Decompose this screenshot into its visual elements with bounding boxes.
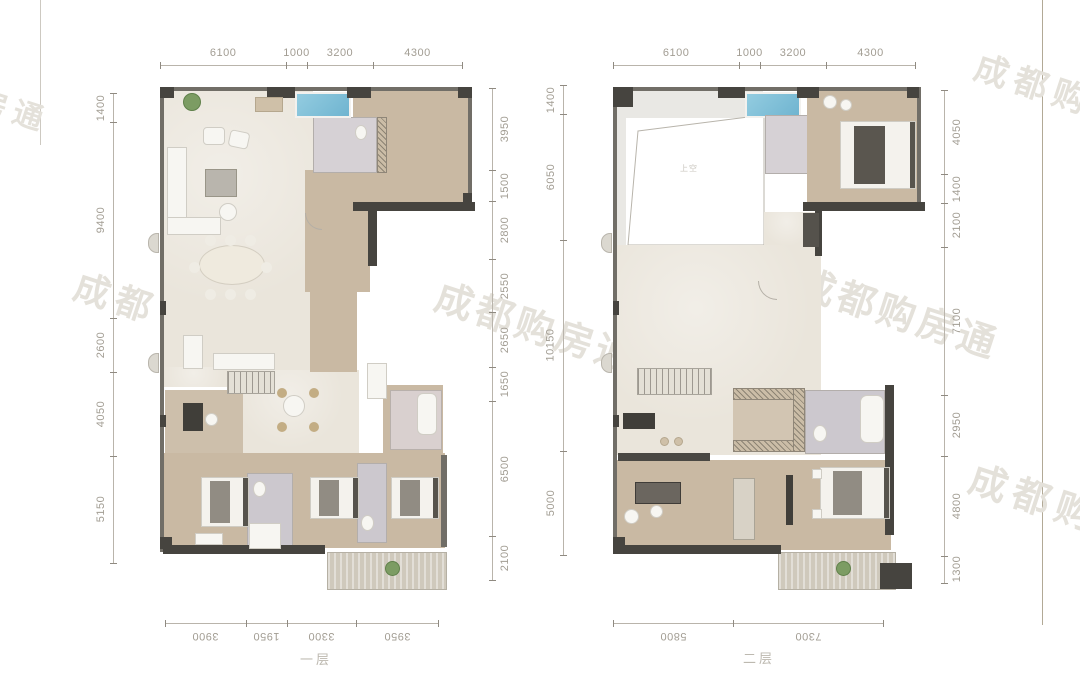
dim-tick [307, 62, 308, 69]
stool [840, 99, 852, 111]
dim-segment: 1400 [92, 93, 110, 122]
dim-chain-first-top: 6100100032004300 [160, 44, 462, 71]
column-block [718, 87, 745, 98]
dim-segment: 1000 [286, 44, 307, 62]
dim-value: 1650 [499, 371, 511, 397]
floorplan-canvas: 房通 成都购 成都 成都购房通 成都购房通 成都购房 [0, 0, 1080, 680]
dining-chairs [205, 235, 216, 246]
dim-value: 4050 [951, 119, 963, 145]
dim-chain-second-bottom: 58007300 [613, 618, 883, 645]
tv-panel [786, 475, 793, 525]
dim-value: 6100 [663, 47, 689, 59]
dim-value: 5000 [545, 490, 557, 516]
nightstand [812, 469, 822, 479]
dim-line [492, 88, 493, 580]
column-block [907, 87, 919, 98]
wall-segment [613, 87, 919, 91]
dim-tick [941, 247, 948, 248]
dim-tick [560, 555, 567, 556]
column-block [613, 537, 625, 547]
wall-segment [803, 202, 925, 211]
single-bed [367, 363, 387, 399]
dim-segment: 2800 [496, 201, 514, 259]
column-block [160, 537, 172, 549]
watermark: 成都购 [969, 40, 1080, 125]
kitchen-island [213, 353, 275, 370]
column-block [160, 415, 166, 427]
column-block [613, 301, 619, 315]
dim-tick [110, 456, 117, 457]
dim-value: 4300 [857, 47, 883, 59]
wall-segment [441, 455, 447, 547]
dim-segment: 10150 [542, 240, 560, 451]
dim-value: 3950 [384, 630, 410, 642]
dim-tick [489, 580, 496, 581]
dim-tick [160, 62, 161, 69]
side-table [219, 203, 237, 221]
dim-line [613, 623, 883, 624]
column-block [613, 87, 633, 107]
dim-tick [560, 451, 567, 452]
flue-bump [148, 353, 159, 373]
column-block [880, 563, 912, 589]
shelf-column [733, 478, 755, 540]
watermark: 成都购房 [963, 448, 1080, 556]
second-floor-label: 二层 [743, 648, 775, 667]
dim-segment: 3950 [496, 88, 514, 170]
flue-bump [601, 353, 612, 373]
dim-value: 3300 [308, 630, 334, 642]
tea-poufs [277, 388, 287, 398]
dim-tick [462, 62, 463, 69]
dim-segment: 2100 [496, 536, 514, 580]
dim-tick [489, 259, 496, 260]
dim-chain-second-right: 4050140021007100295048001300 [939, 90, 966, 583]
dim-value: 1000 [283, 47, 309, 59]
second-floor-plan [608, 85, 953, 597]
dim-segment: 3200 [760, 44, 826, 62]
dim-segment: 5800 [613, 627, 733, 645]
dim-tick [110, 318, 117, 319]
dim-tick [560, 85, 567, 86]
wardrobe [793, 388, 805, 452]
corridor-floor [310, 290, 357, 372]
flue-bump [601, 233, 612, 253]
bathtub [860, 395, 884, 443]
dim-value: 2550 [499, 272, 511, 298]
dim-segment: 4050 [948, 90, 966, 174]
dim-value: 3900 [192, 630, 218, 642]
dim-line [165, 623, 438, 624]
dim-tick [489, 312, 496, 313]
dim-value: 1000 [736, 47, 762, 59]
wall-segment [163, 545, 325, 554]
study-desk [635, 482, 681, 504]
dim-segment: 6050 [542, 114, 560, 240]
dim-value: 2600 [95, 331, 107, 357]
balcony-plant [385, 561, 400, 576]
wall-segment [368, 211, 377, 266]
dim-tick [489, 88, 496, 89]
wardrobe [377, 117, 387, 173]
dining-table [199, 245, 265, 285]
dim-segment: 1400 [542, 85, 560, 114]
dim-tick [110, 93, 117, 94]
dim-tick [941, 90, 948, 91]
dim-value: 1500 [499, 172, 511, 198]
dim-value: 2650 [499, 326, 511, 352]
dim-segment: 1950 [246, 627, 287, 645]
dim-segment: 3900 [165, 627, 246, 645]
bench [195, 533, 223, 545]
dim-segment: 7300 [733, 627, 883, 645]
dim-value: 1300 [951, 556, 963, 582]
dim-value: 7100 [951, 308, 963, 334]
dim-tick [489, 170, 496, 171]
dim-tick [941, 456, 948, 457]
tea-table [283, 395, 305, 417]
toilet [813, 425, 827, 442]
wall-segment [613, 87, 617, 552]
dim-chain-first-right: 39501500280025502650165065002100 [487, 88, 514, 580]
dim-tick [489, 536, 496, 537]
dim-tick [941, 203, 948, 204]
dim-tick [941, 556, 948, 557]
wall-segment [160, 87, 472, 91]
column-block [347, 87, 371, 98]
dim-segment: 9400 [92, 122, 110, 317]
dim-line [160, 65, 462, 66]
dim-segment: 5150 [92, 456, 110, 563]
dim-tick [560, 240, 567, 241]
armchair [203, 127, 225, 145]
dim-tick [613, 62, 614, 69]
study-floor [165, 390, 243, 455]
dim-segment: 3200 [307, 44, 373, 62]
bathroom-floor [357, 463, 387, 543]
dim-tick [286, 62, 287, 69]
dim-tick [356, 620, 357, 627]
master-bed [840, 121, 916, 189]
dim-tick [941, 583, 948, 584]
nightstand [812, 509, 822, 519]
study-desk [183, 403, 203, 431]
dim-value: 3200 [327, 47, 353, 59]
toilet [361, 515, 374, 531]
dim-segment: 1000 [739, 44, 760, 62]
corridor-floor [305, 170, 370, 292]
dim-tick [110, 372, 117, 373]
dim-tick [165, 620, 166, 627]
wall-segment [160, 87, 164, 552]
dim-value: 1400 [95, 94, 107, 120]
sofa [167, 217, 221, 235]
dim-value: 4050 [95, 401, 107, 427]
dim-chain-second-top: 6100100032004300 [613, 44, 915, 71]
dim-value: 4300 [404, 47, 430, 59]
dim-segment: 6500 [496, 401, 514, 536]
dim-tick [941, 395, 948, 396]
vase [660, 437, 669, 446]
dim-segment: 6100 [613, 44, 739, 62]
dim-value: 2800 [499, 217, 511, 243]
dim-value: 2100 [499, 545, 511, 571]
dim-value: 6100 [210, 47, 236, 59]
dim-segment: 3950 [356, 627, 438, 645]
dim-tick [489, 367, 496, 368]
dim-tick [733, 620, 734, 627]
void-label: 上空 [680, 163, 698, 174]
dim-tick [246, 620, 247, 627]
stairs [227, 371, 275, 394]
desk-chair [205, 413, 218, 426]
console [618, 453, 710, 461]
column-block [797, 87, 819, 98]
column-block [458, 87, 472, 98]
cabinet [255, 97, 283, 112]
dim-tick [613, 620, 614, 627]
dim-segment: 1650 [496, 367, 514, 401]
toilet [253, 481, 266, 497]
wall-segment [917, 87, 921, 205]
void-area [626, 113, 766, 247]
toilet [355, 125, 367, 140]
dim-value: 9400 [95, 207, 107, 233]
column-block [463, 193, 472, 204]
watermark: 房通 [0, 76, 56, 141]
dim-segment: 6100 [160, 44, 286, 62]
dim-segment: 2650 [496, 312, 514, 367]
dim-value: 2950 [951, 412, 963, 438]
column-block [160, 87, 174, 98]
dim-segment: 1300 [948, 556, 966, 583]
dim-value: 7300 [795, 630, 821, 642]
dim-segment: 2100 [948, 203, 966, 247]
wall-segment [353, 202, 475, 211]
dim-tick [489, 201, 496, 202]
dim-chain-first-bottom: 3900195033003950 [165, 618, 438, 645]
kitchen-counter [183, 335, 203, 369]
dim-chain-second-left: 14006050101505000 [542, 85, 569, 555]
dim-tick [739, 62, 740, 69]
dim-value: 4800 [951, 493, 963, 519]
stairs [637, 368, 712, 395]
column-block [160, 301, 166, 315]
pouf [624, 509, 639, 524]
dim-line [113, 93, 114, 563]
dim-tick [915, 62, 916, 69]
dim-value: 6500 [499, 456, 511, 482]
cabinet [803, 213, 819, 247]
wall-segment [613, 545, 781, 554]
stool [823, 95, 837, 109]
dim-value: 5800 [660, 630, 686, 642]
wall-segment [468, 87, 472, 204]
dim-segment: 3300 [287, 627, 356, 645]
dim-value: 3950 [499, 116, 511, 142]
dim-segment: 1400 [948, 174, 966, 203]
dim-tick [373, 62, 374, 69]
desk-chair [650, 505, 663, 518]
dim-tick [941, 174, 948, 175]
dim-segment: 4800 [948, 456, 966, 556]
bed [820, 467, 890, 519]
bed [310, 477, 359, 519]
dim-segment: 4050 [92, 372, 110, 456]
dim-tick [760, 62, 761, 69]
dim-line [563, 85, 564, 555]
plant [183, 93, 201, 111]
bathroom-floor [313, 117, 377, 173]
first-floor-label: 一层 [300, 649, 332, 668]
dim-value: 10150 [545, 329, 557, 362]
dim-value: 3200 [780, 47, 806, 59]
dim-value: 1400 [951, 176, 963, 202]
bed [391, 477, 439, 519]
column-block [613, 415, 619, 427]
dim-segment: 2600 [92, 318, 110, 372]
dim-chain-first-left: 14009400260040505150 [92, 93, 119, 563]
dim-tick [110, 563, 117, 564]
dim-tick [489, 401, 496, 402]
bed [201, 477, 249, 527]
dim-value: 6050 [545, 164, 557, 190]
dim-segment: 5000 [542, 451, 560, 555]
dim-tick [826, 62, 827, 69]
dim-value: 1400 [545, 86, 557, 112]
dim-tick [438, 620, 439, 627]
dim-line [944, 90, 945, 583]
dim-segment: 2950 [948, 395, 966, 456]
dim-segment: 4300 [826, 44, 915, 62]
dim-value: 1950 [253, 630, 279, 642]
dim-tick [110, 122, 117, 123]
dim-line [613, 65, 915, 66]
shower [249, 523, 281, 549]
vase [674, 437, 683, 446]
flue-bump [148, 233, 159, 253]
dim-tick [287, 620, 288, 627]
pool [295, 92, 351, 118]
bathtub [417, 393, 437, 435]
dim-segment: 4300 [373, 44, 462, 62]
dim-value: 5150 [95, 496, 107, 522]
treadmill [623, 413, 655, 429]
dim-segment: 2550 [496, 259, 514, 312]
first-floor-plan [155, 85, 475, 597]
dim-segment: 7100 [948, 247, 966, 395]
balcony-plant [836, 561, 851, 576]
coffee-table [205, 169, 237, 197]
dim-value: 2100 [951, 212, 963, 238]
dim-segment: 1500 [496, 170, 514, 201]
dim-tick [560, 114, 567, 115]
dim-tick [883, 620, 884, 627]
